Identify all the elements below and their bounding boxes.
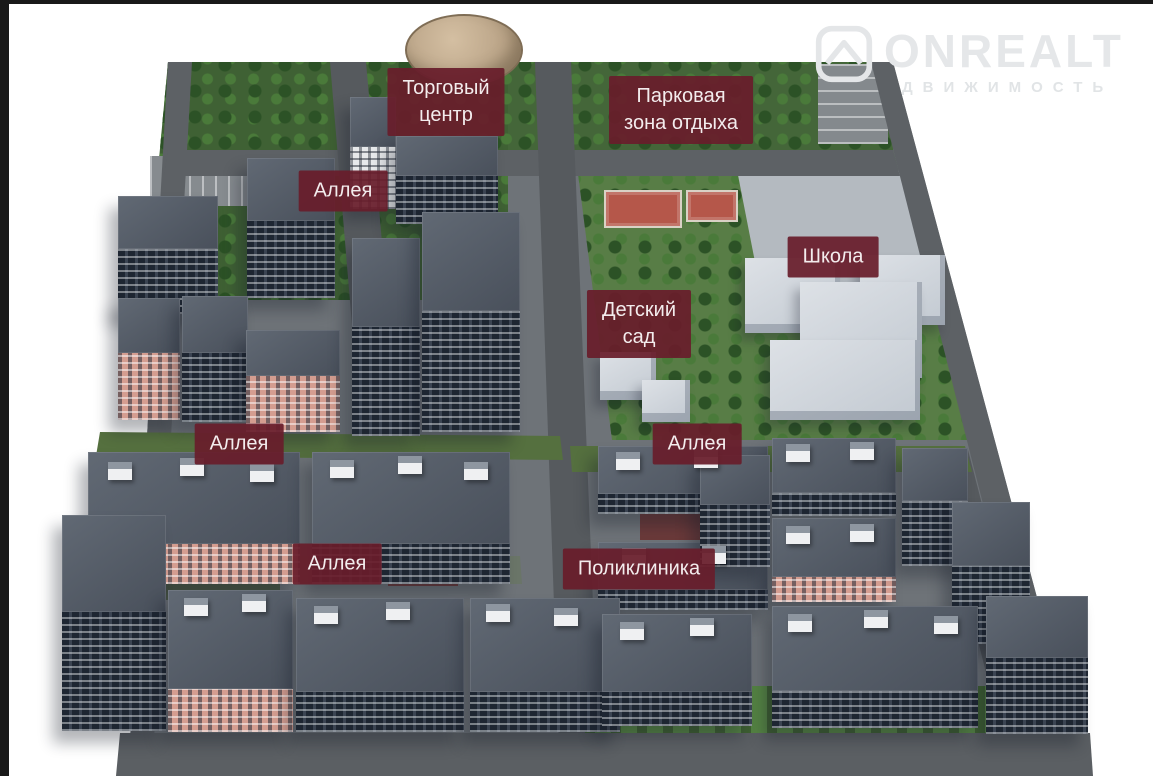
building-block xyxy=(118,298,180,420)
building-block xyxy=(246,330,340,432)
label-park-zone: Парковая зона отдыха xyxy=(609,76,753,144)
label-alley: Аллея xyxy=(299,171,388,212)
masterplan-render: Торговый центр Парковая зона отдыха Алле… xyxy=(0,0,1153,776)
building-block xyxy=(772,518,896,602)
building-block xyxy=(772,438,896,516)
brand-logo: ONREALT ДВИЖИМОСТЬ xyxy=(814,22,1144,112)
label-school: Школа xyxy=(788,237,879,278)
label-alley: Аллея xyxy=(195,424,284,465)
building-block xyxy=(422,212,520,432)
building-block polyclinic-building xyxy=(602,614,752,726)
brand-subtitle: ДВИЖИМОСТЬ xyxy=(902,79,1113,96)
label-alley: Аллея xyxy=(653,424,742,465)
building-block xyxy=(168,590,293,732)
building-block xyxy=(396,136,498,224)
label-shopping-center: Торговый центр xyxy=(387,68,504,136)
basketball-court-large xyxy=(604,190,682,228)
building-block xyxy=(352,238,420,436)
label-alley: Аллея xyxy=(293,544,382,585)
building-block xyxy=(470,598,620,732)
building-block xyxy=(296,598,464,732)
school-building xyxy=(770,340,920,420)
building-block xyxy=(986,596,1088,734)
label-kindergarten: Детский сад xyxy=(587,290,691,358)
label-polyclinic: Поликлиника xyxy=(563,549,715,590)
building-block xyxy=(772,606,978,728)
building-block xyxy=(182,296,248,422)
kindergarten-building xyxy=(642,380,690,422)
frame-edge-top xyxy=(0,0,1153,4)
building-block xyxy=(62,515,166,731)
roof-logo-icon xyxy=(814,24,874,84)
frame-edge-left xyxy=(0,0,9,776)
brand-name: ONREALT xyxy=(884,24,1124,78)
basketball-court-small xyxy=(686,190,738,222)
